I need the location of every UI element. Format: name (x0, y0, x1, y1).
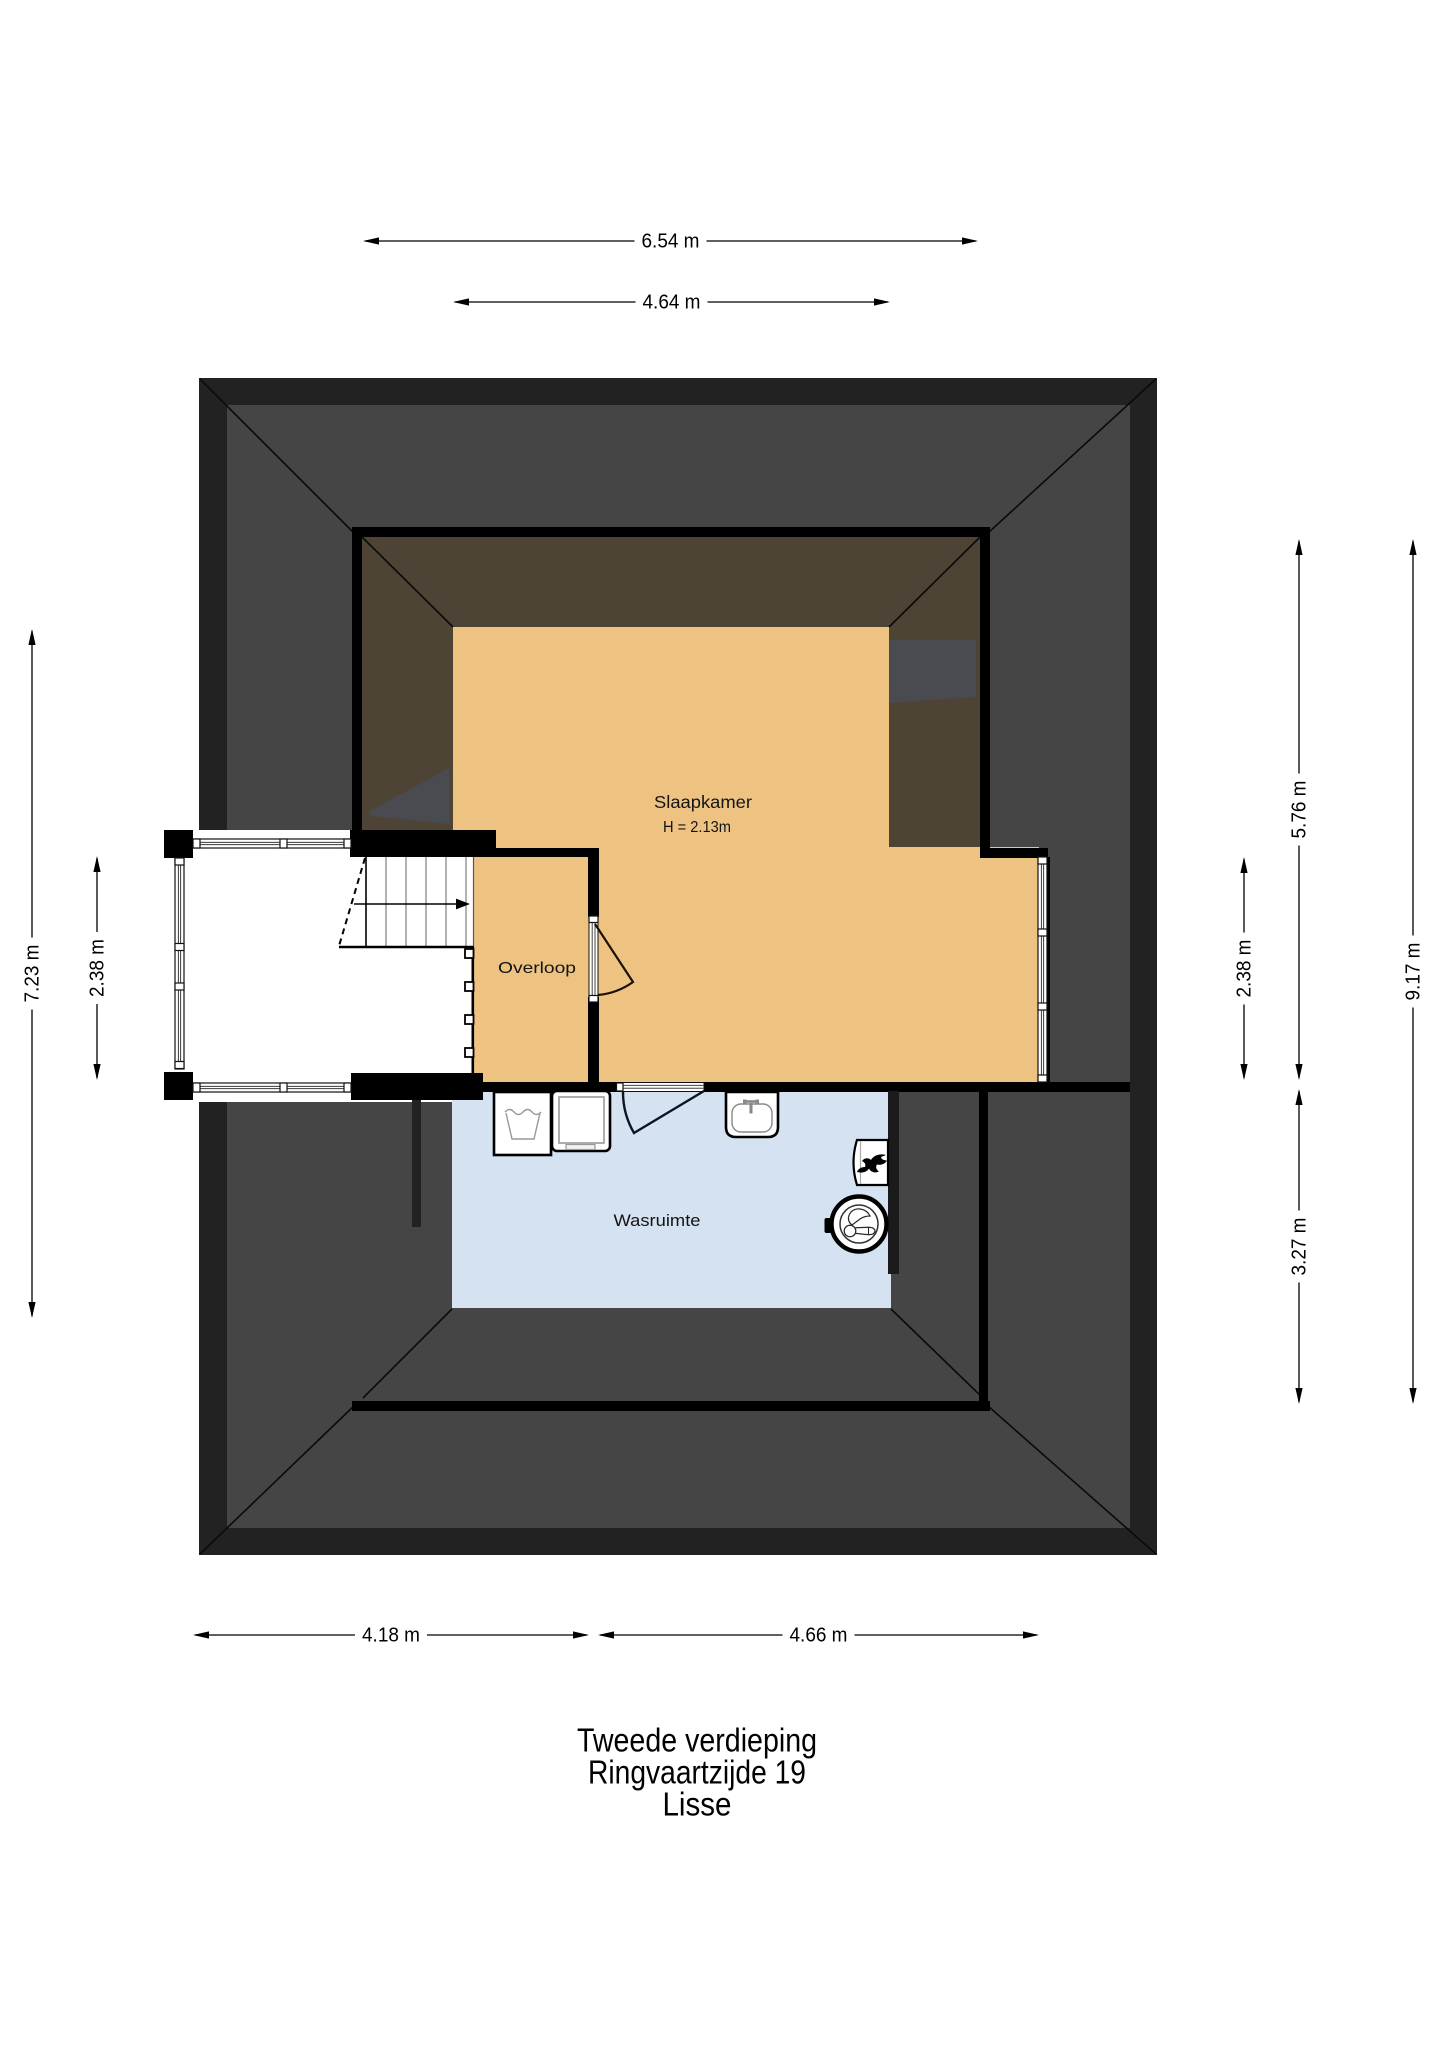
svg-text:Slaapkamer: Slaapkamer (654, 792, 752, 812)
svg-text:7.23 m: 7.23 m (22, 945, 44, 1003)
svg-text:9.17 m: 9.17 m (1403, 943, 1425, 1001)
svg-text:H = 2.13m: H = 2.13m (663, 819, 731, 836)
svg-text:2.38 m: 2.38 m (1234, 940, 1256, 998)
svg-text:6.54 m: 6.54 m (642, 231, 700, 253)
svg-text:2.38 m: 2.38 m (87, 939, 109, 997)
svg-text:4.66 m: 4.66 m (790, 1625, 848, 1647)
svg-text:3.27 m: 3.27 m (1289, 1218, 1311, 1276)
svg-text:Lisse: Lisse (663, 1786, 732, 1823)
svg-text:5.76 m: 5.76 m (1289, 781, 1311, 839)
svg-text:4.64 m: 4.64 m (643, 292, 701, 314)
svg-text:Overloop: Overloop (498, 960, 576, 977)
svg-text:Wasruimte: Wasruimte (614, 1212, 701, 1230)
svg-text:4.18 m: 4.18 m (362, 1625, 420, 1647)
